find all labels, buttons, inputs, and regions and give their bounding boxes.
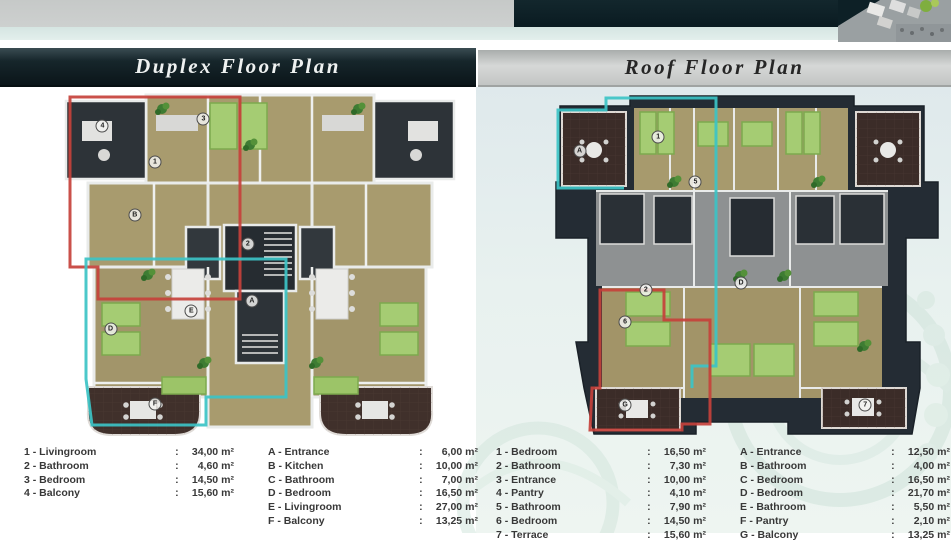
legend-unit: m² <box>937 529 950 543</box>
roof-floor-plan: A152D6G7 <box>534 92 948 440</box>
legend-row: E - Bathroom:5,50m² <box>740 501 950 515</box>
legend-unit: m² <box>937 501 950 515</box>
legend-num: 4,60 <box>182 460 218 474</box>
legend-label: 3 - Entrance <box>496 474 647 488</box>
legend-row: F - Pantry:2,10m² <box>740 515 950 529</box>
roof-legend-column-1: 1 - Bedroom:16,50m²2 - Bathroom:7,30m²3 … <box>496 446 706 543</box>
aerial-render-graphic <box>838 0 951 42</box>
room-marker: 1 <box>148 155 161 168</box>
duplex-legend: 1 - Livingroom:34,00m²2 - Bathroom:4,60m… <box>24 446 478 529</box>
legend-num: 4,10 <box>654 487 690 501</box>
duplex-panel-title: Duplex Floor Plan <box>135 54 341 79</box>
duplex-floor-plan: 4312BAEDF <box>58 87 462 443</box>
room-marker: B <box>128 209 141 222</box>
legend-num: 15,60 <box>654 529 690 543</box>
legend-label: C - Bedroom <box>740 474 891 488</box>
legend-label: D - Bedroom <box>740 487 891 501</box>
legend-unit: m² <box>465 460 478 474</box>
legend-row: 3 - Entrance:10,00m² <box>496 474 706 488</box>
legend-num: 4,00 <box>898 460 934 474</box>
legend-num: 2,10 <box>898 515 934 529</box>
legend-num: 15,60 <box>182 487 218 501</box>
room-marker: 4 <box>96 120 109 133</box>
legend-label: 7 - Terrace <box>496 529 647 543</box>
legend-colon: : <box>891 529 898 543</box>
legend-colon: : <box>891 501 898 515</box>
legend-label: 4 - Pantry <box>496 487 647 501</box>
legend-colon: : <box>175 446 182 460</box>
legend-row: D - Bedroom:16,50m² <box>268 487 478 501</box>
legend-colon: : <box>891 474 898 488</box>
legend-row: A - Entrance:12,50m² <box>740 446 950 460</box>
legend-colon: : <box>419 515 426 529</box>
room-marker: G <box>619 399 632 412</box>
legend-label: 1 - Livingroom <box>24 446 175 460</box>
legend-colon: : <box>647 529 654 543</box>
legend-unit: m² <box>221 474 234 488</box>
room-marker: 7 <box>859 399 872 412</box>
legend-row: 3 - Bedroom:14,50m² <box>24 474 234 488</box>
legend-row: 1 - Bedroom:16,50m² <box>496 446 706 460</box>
legend-unit: m² <box>693 474 706 488</box>
legend-unit: m² <box>693 501 706 515</box>
legend-colon: : <box>175 474 182 488</box>
legend-num: 16,50 <box>898 474 934 488</box>
legend-row: G - Balcony:13,25m² <box>740 529 950 543</box>
legend-num: 7,90 <box>654 501 690 515</box>
legend-colon: : <box>647 460 654 474</box>
legend-unit: m² <box>221 460 234 474</box>
legend-unit: m² <box>693 515 706 529</box>
legend-num: 16,50 <box>426 487 462 501</box>
legend-colon: : <box>419 474 426 488</box>
legend-unit: m² <box>937 446 950 460</box>
legend-unit: m² <box>693 446 706 460</box>
legend-label: 2 - Bathroom <box>24 460 175 474</box>
legend-colon: : <box>891 460 898 474</box>
legend-num: 14,50 <box>654 515 690 529</box>
roof-legend-column-2: A - Entrance:12,50m²B - Bathroom:4,00m²C… <box>740 446 950 543</box>
legend-unit: m² <box>465 501 478 515</box>
legend-row: E - Livingroom:27,00m² <box>268 501 478 515</box>
legend-num: 5,50 <box>898 501 934 515</box>
roof-legend: 1 - Bedroom:16,50m²2 - Bathroom:7,30m²3 … <box>496 446 950 543</box>
legend-row: C - Bathroom:7,00m² <box>268 474 478 488</box>
legend-row: 5 - Bathroom:7,90m² <box>496 501 706 515</box>
legend-label: C - Bathroom <box>268 474 419 488</box>
legend-unit: m² <box>221 487 234 501</box>
legend-num: 12,50 <box>898 446 934 460</box>
roof-panel-header: Roof Floor Plan <box>478 50 951 87</box>
legend-unit: m² <box>693 487 706 501</box>
legend-num: 21,70 <box>898 487 934 501</box>
legend-colon: : <box>647 487 654 501</box>
room-marker: 3 <box>197 113 210 126</box>
legend-unit: m² <box>937 487 950 501</box>
room-marker: A <box>245 294 258 307</box>
legend-colon: : <box>891 487 898 501</box>
legend-unit: m² <box>693 529 706 543</box>
room-marker: F <box>148 397 161 410</box>
top-strip-pale-accent <box>0 27 951 40</box>
legend-colon: : <box>647 446 654 460</box>
room-marker: 1 <box>652 131 665 144</box>
room-marker: E <box>185 305 198 318</box>
legend-num: 34,00 <box>182 446 218 460</box>
top-strip-gray <box>0 0 514 27</box>
legend-unit: m² <box>937 474 950 488</box>
legend-colon: : <box>419 460 426 474</box>
legend-num: 13,25 <box>426 515 462 529</box>
legend-label: F - Balcony <box>268 515 419 529</box>
legend-row: B - Kitchen:10,00m² <box>268 460 478 474</box>
legend-num: 10,00 <box>654 474 690 488</box>
room-marker: A <box>573 145 586 158</box>
legend-row: 2 - Bathroom:7,30m² <box>496 460 706 474</box>
legend-row: C - Bedroom:16,50m² <box>740 474 950 488</box>
legend-label: E - Livingroom <box>268 501 419 515</box>
legend-colon: : <box>647 515 654 529</box>
brochure-page: { "header_strip": { "left_block_color": … <box>0 0 951 533</box>
legend-label: 4 - Balcony <box>24 487 175 501</box>
room-marker: 2 <box>639 284 652 297</box>
legend-label: A - Entrance <box>740 446 891 460</box>
legend-row: 4 - Pantry:4,10m² <box>496 487 706 501</box>
duplex-legend-column-2: A - Entrance:6,00m²B - Kitchen:10,00m²C … <box>268 446 478 529</box>
legend-label: D - Bedroom <box>268 487 419 501</box>
duplex-plan-markers: 4312BAEDF <box>58 87 462 443</box>
legend-num: 10,00 <box>426 460 462 474</box>
legend-colon: : <box>891 515 898 529</box>
legend-unit: m² <box>937 460 950 474</box>
duplex-legend-column-1: 1 - Livingroom:34,00m²2 - Bathroom:4,60m… <box>24 446 234 529</box>
legend-num: 27,00 <box>426 501 462 515</box>
legend-row: 2 - Bathroom:4,60m² <box>24 460 234 474</box>
legend-unit: m² <box>465 446 478 460</box>
legend-row: 6 - Bedroom:14,50m² <box>496 515 706 529</box>
legend-colon: : <box>891 446 898 460</box>
legend-label: G - Balcony <box>740 529 891 543</box>
room-marker: D <box>735 277 748 290</box>
legend-label: B - Kitchen <box>268 460 419 474</box>
legend-label: 5 - Bathroom <box>496 501 647 515</box>
legend-label: A - Entrance <box>268 446 419 460</box>
legend-label: B - Bathroom <box>740 460 891 474</box>
room-marker: 2 <box>241 237 254 250</box>
top-strip-dark-teal <box>514 0 843 27</box>
legend-unit: m² <box>465 515 478 529</box>
legend-num: 7,30 <box>654 460 690 474</box>
legend-label: 2 - Bathroom <box>496 460 647 474</box>
legend-colon: : <box>419 446 426 460</box>
legend-unit: m² <box>221 446 234 460</box>
legend-unit: m² <box>937 515 950 529</box>
duplex-panel-header: Duplex Floor Plan <box>0 48 476 87</box>
legend-num: 6,00 <box>426 446 462 460</box>
legend-row: D - Bedroom:21,70m² <box>740 487 950 501</box>
legend-row: 1 - Livingroom:34,00m² <box>24 446 234 460</box>
legend-row: F - Balcony:13,25m² <box>268 515 478 529</box>
legend-colon: : <box>175 487 182 501</box>
legend-label: F - Pantry <box>740 515 891 529</box>
legend-label: 6 - Bedroom <box>496 515 647 529</box>
legend-unit: m² <box>465 487 478 501</box>
legend-colon: : <box>419 487 426 501</box>
legend-unit: m² <box>693 460 706 474</box>
legend-label: 3 - Bedroom <box>24 474 175 488</box>
legend-label: E - Bathroom <box>740 501 891 515</box>
legend-row: 7 - Terrace:15,60m² <box>496 529 706 543</box>
legend-row: 4 - Balcony:15,60m² <box>24 487 234 501</box>
legend-num: 7,00 <box>426 474 462 488</box>
legend-colon: : <box>647 501 654 515</box>
legend-label: 1 - Bedroom <box>496 446 647 460</box>
legend-num: 16,50 <box>654 446 690 460</box>
roof-plan-markers: A152D6G7 <box>534 92 948 440</box>
room-marker: D <box>104 323 117 336</box>
site-aerial-thumbnail <box>838 0 951 42</box>
legend-num: 13,25 <box>898 529 934 543</box>
room-marker: 5 <box>689 176 702 189</box>
legend-row: B - Bathroom:4,00m² <box>740 460 950 474</box>
legend-unit: m² <box>465 474 478 488</box>
legend-colon: : <box>419 501 426 515</box>
room-marker: 6 <box>619 315 632 328</box>
legend-colon: : <box>175 460 182 474</box>
legend-colon: : <box>647 474 654 488</box>
roof-panel-title: Roof Floor Plan <box>625 55 805 80</box>
legend-num: 14,50 <box>182 474 218 488</box>
legend-row: A - Entrance:6,00m² <box>268 446 478 460</box>
